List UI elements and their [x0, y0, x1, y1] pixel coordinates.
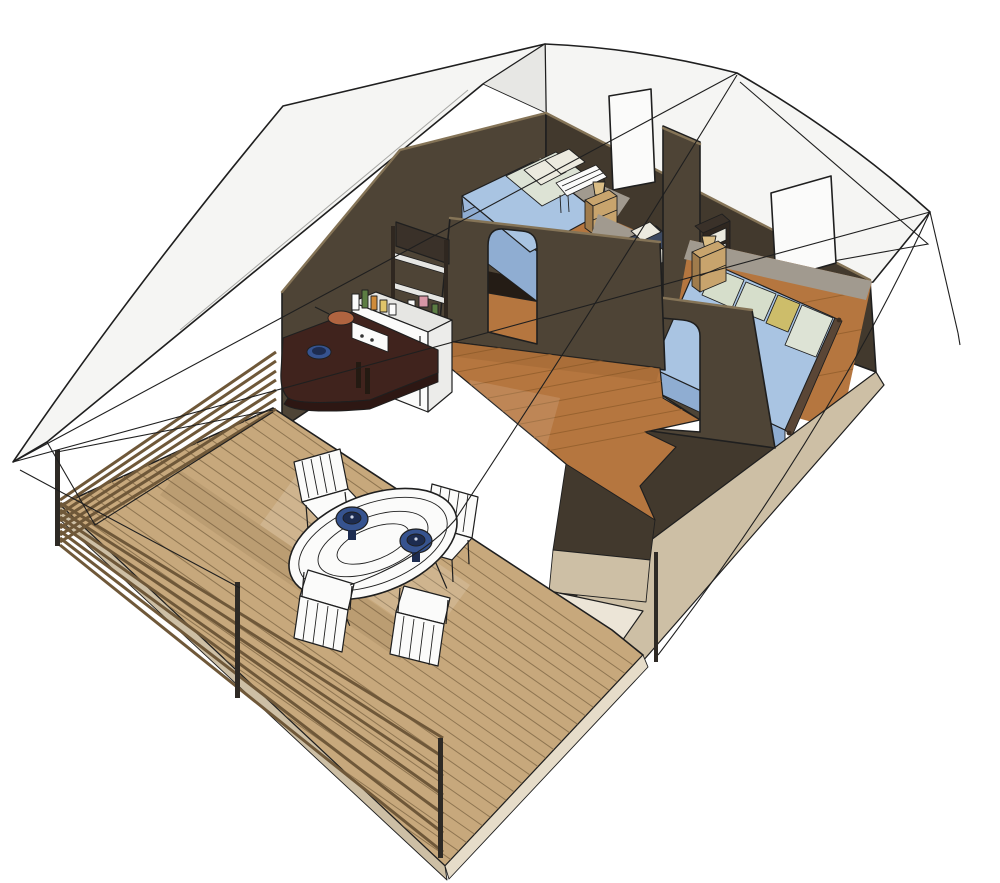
entrance-post — [654, 552, 658, 662]
fence-post — [438, 738, 443, 858]
stake — [958, 333, 960, 345]
bottle — [389, 304, 396, 315]
copper-pan — [328, 311, 354, 325]
deck-surface — [60, 408, 643, 866]
bottle — [362, 290, 368, 308]
render-stage — [0, 0, 1000, 883]
dark-bottle — [356, 362, 361, 388]
bottle — [352, 294, 359, 310]
nightstand1-front — [585, 200, 593, 234]
tent-floorplan-render — [0, 0, 1000, 883]
nightstand2-front — [692, 252, 700, 292]
fence-post — [235, 582, 240, 698]
bottle — [371, 296, 377, 310]
dark-bottle — [365, 368, 370, 394]
fence-post — [55, 450, 60, 546]
bottle — [380, 300, 387, 312]
rear-canvas-window — [609, 89, 655, 190]
guy-rope-right-stake — [930, 212, 958, 333]
shelf-item-pink — [419, 296, 428, 307]
